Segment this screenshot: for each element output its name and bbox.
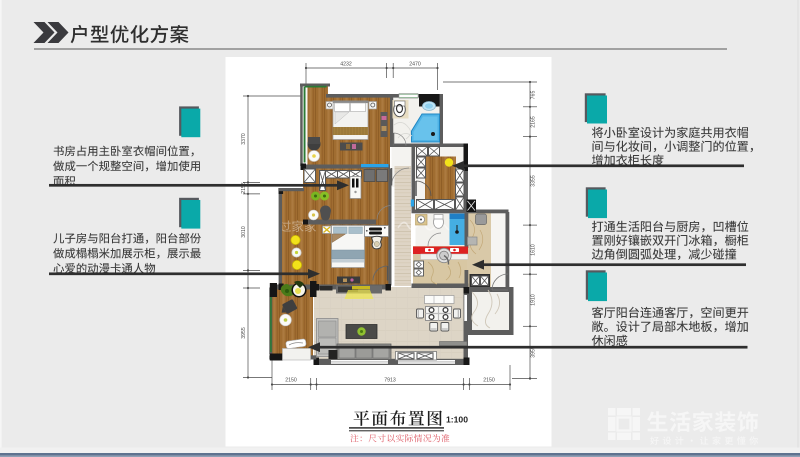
svg-text:3955: 3955 xyxy=(241,327,247,339)
svg-text:2155: 2155 xyxy=(241,182,247,194)
svg-text:1610: 1610 xyxy=(531,244,537,256)
svg-text:2470: 2470 xyxy=(409,62,421,68)
svg-text:1910: 1910 xyxy=(531,294,537,306)
svg-text:2150: 2150 xyxy=(285,378,297,384)
svg-text:2165: 2165 xyxy=(531,116,537,128)
svg-text:765: 765 xyxy=(531,91,537,100)
svg-text:7913: 7913 xyxy=(384,378,396,384)
svg-text:3370: 3370 xyxy=(241,133,247,145)
svg-text:4232: 4232 xyxy=(340,62,352,68)
svg-text:3010: 3010 xyxy=(241,226,247,238)
svg-text:2150: 2150 xyxy=(483,378,495,384)
svg-text:1:100: 1:100 xyxy=(446,415,468,425)
svg-text:3355: 3355 xyxy=(531,175,537,187)
